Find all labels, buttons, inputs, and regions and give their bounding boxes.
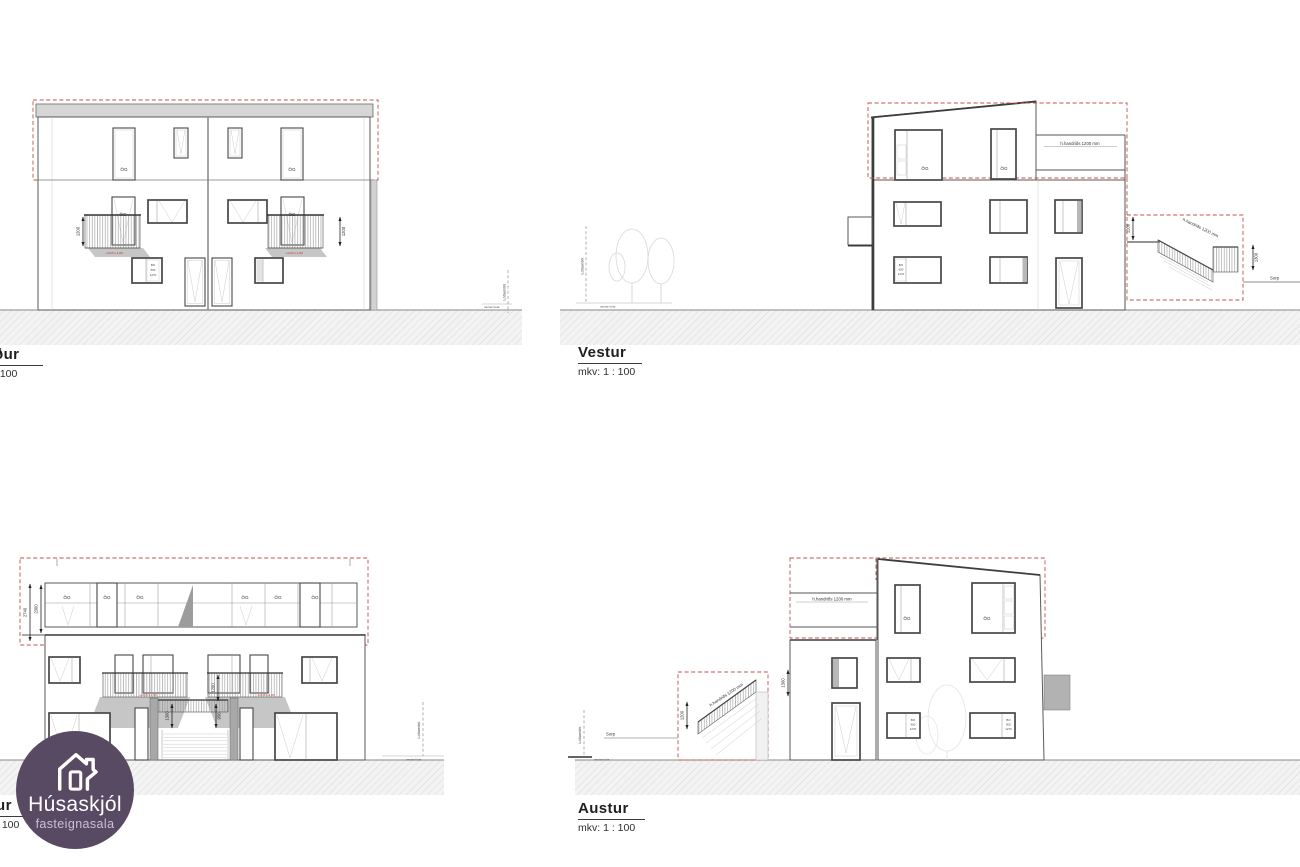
og-label: ÖG (983, 615, 991, 621)
dim-2300: 2300 (34, 604, 39, 614)
logo-title: Húsaskjól (28, 794, 122, 815)
window-spec: 600 (151, 268, 156, 272)
lot-boundary-label: Lóðamörk (577, 726, 582, 743)
og-label: ÖG (63, 594, 71, 600)
window-spec: 1270 (910, 727, 917, 731)
roof-band (36, 104, 373, 117)
sorp-label: Sorp (1270, 276, 1280, 281)
dim-2740: 2740 (23, 607, 28, 617)
roof-terrace-structures: ÖG ÖG ÖG ÖG ÖG ÖG (22, 583, 366, 635)
height-dimensions: 2740 2300 (23, 584, 42, 641)
lot-boundary-marker: Lóðamörk vantar kóta (382, 702, 444, 761)
window-spec: 600 (911, 723, 916, 727)
ground-band (575, 760, 1300, 795)
architectural-elevations-sheet: { "page": { "background": "#ffffff" }, "… (0, 0, 1300, 867)
external-stair: 1200 h.handriðs 1200 mm 1300 Sorp (1126, 217, 1300, 290)
elevation-vestur-drawing: Lóðamörk vantar kóta h.handriðs 1200 mm … (560, 60, 1300, 360)
missing-note: vantar kóta (600, 304, 616, 308)
dim-1200: 1200 (341, 226, 346, 236)
window-spec: 600 (899, 268, 904, 272)
dim-1200: 1200 (1126, 223, 1131, 233)
lot-boundary-label: Lóðamörk (502, 283, 507, 300)
wall-projection (848, 217, 872, 245)
og-label: ÖG (288, 166, 296, 172)
ground-band (0, 310, 522, 345)
house-icon (51, 749, 99, 791)
lot-boundary-label: Lóðamörk (580, 257, 585, 274)
elevation-title: Vestur (578, 344, 642, 364)
og-label: ÖG (136, 594, 144, 600)
elevation-title: Austur (578, 800, 645, 820)
handrail-note: h.handriðs 1200 mm (1060, 141, 1100, 146)
dim-1200: 1200 (211, 683, 216, 693)
level-note: +10,8=+1,80 (139, 693, 157, 697)
window-spec: 1270 (1005, 727, 1012, 731)
building-facade: h.handriðs 1200 mm (848, 101, 1125, 310)
missing-note: vantar kóta (406, 757, 422, 761)
husaskjol-logo: Húsaskjól fasteignasala (16, 731, 134, 849)
wall-projection (1044, 675, 1070, 710)
lot-boundary-marker: Lóðamörk Sorp vantar kóta (568, 710, 678, 762)
elevation-scale: mkv: 1 : 100 (578, 822, 645, 834)
level-note: +10,8=+1,80 (285, 251, 303, 255)
missing-note: vantar kóta (484, 305, 500, 309)
dim-1300: 1300 (781, 678, 786, 688)
roof-terrace-railing: h.handriðs 1200 mm (790, 593, 878, 627)
missing-note: vantar kóta (594, 758, 610, 762)
lot-boundary-label: Lóðamörk (416, 721, 421, 738)
dim-1200: 1200 (680, 710, 685, 720)
elevation-scale: : 100 (0, 368, 43, 380)
handrail-note: h.handriðs 1200 mm (1182, 217, 1220, 239)
lot-boundary-marker: Lóðamörk vantar kóta (482, 270, 512, 313)
handrail-note: h.handriðs 1200 mm (812, 597, 852, 602)
logo-subtitle: fasteignasala (36, 817, 115, 831)
building-facade (36, 104, 377, 310)
title-austur: Austur mkv: 1 : 100 (578, 800, 645, 834)
title-top-left: ður : 100 (0, 346, 43, 380)
window-spec: 1270 (898, 272, 905, 276)
dim-1200: 1200 (76, 226, 81, 236)
og-label: ÖG (241, 594, 249, 600)
ground-band (560, 310, 1300, 345)
elevation-top-left-drawing: ÖG ÖG ÖG ÖG +10,8=+1,80 +10,8=+1,80 1200 (0, 60, 560, 360)
og-label: ÖG (120, 166, 128, 172)
og-label: ÖG (103, 594, 111, 600)
level-note: +10,8=+1,80 (257, 693, 275, 697)
og-label: ÖG (903, 615, 911, 621)
og-label: ÖG (1000, 165, 1008, 171)
title-vestur: Vestur mkv: 1 : 100 (578, 344, 642, 378)
window-spec: 600 (1006, 723, 1011, 727)
og-label: ÖG (311, 594, 319, 600)
og-label: ÖG (274, 594, 282, 600)
elevation-austur-drawing: Lóðamörk Sorp vantar kóta 1200 h.handrið… (560, 550, 1300, 867)
sorp-label: Sorp (606, 732, 616, 737)
elevation-title: ður (0, 346, 43, 366)
elevation-scale: mkv: 1 : 100 (578, 366, 642, 378)
level-note: +10,8=+1,80 (105, 251, 123, 255)
external-stair: 1200 h.handriðs 1200 mm (680, 680, 769, 760)
og-label: ÖG (921, 165, 929, 171)
dim-950: 950 (217, 712, 222, 720)
dim-1300: 1300 (1254, 252, 1259, 262)
dim-1300: 1300 (165, 711, 170, 721)
window-spec: 1270 (150, 273, 157, 277)
